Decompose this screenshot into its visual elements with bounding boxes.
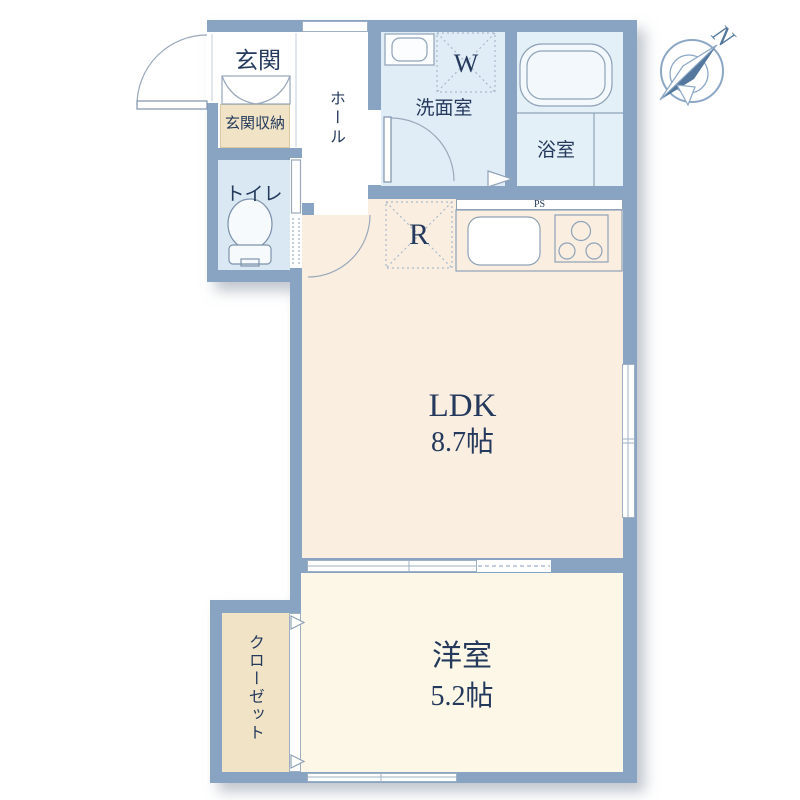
label-bathroom: 浴室	[517, 140, 595, 161]
label-ldk: LDK	[302, 388, 623, 425]
label-western-room: 洋室	[301, 640, 623, 674]
toilet-door-leaf	[292, 160, 301, 213]
entrance-door-icon	[137, 35, 207, 109]
bath-door-triangle-icon	[488, 171, 512, 187]
label-washer-space: W	[437, 49, 495, 78]
washroom-door-icon	[384, 117, 454, 182]
toilet-door-pocket-dashes	[293, 218, 299, 266]
toilet-icon	[228, 199, 272, 266]
washbasin-icon	[385, 34, 434, 65]
label-toilet: トイレ	[217, 184, 291, 205]
label-refrigerator-space: R	[386, 218, 452, 252]
compass-rose-icon: N	[660, 18, 742, 105]
label-washroom: 洗面室	[383, 98, 505, 119]
kitchen-counter-icon	[456, 210, 622, 271]
label-ldk-size: 8.7帖	[302, 427, 623, 458]
label-hall: ホール	[326, 90, 344, 147]
floor-plan: N 玄関 玄関収納 トイレ ホール 洗面室 W 浴室 R PS LDK 8.7帖…	[0, 0, 800, 800]
label-genkan: 玄関	[218, 48, 298, 74]
bathtub-icon	[517, 44, 623, 186]
label-western-room-size: 5.2帖	[301, 681, 623, 712]
label-closet: クローゼット	[245, 634, 263, 742]
label-pipe-space: PS	[456, 199, 623, 210]
ldk-door-arc-icon	[308, 215, 370, 277]
shoe-cabinet-icon	[222, 76, 290, 104]
label-genkan-storage: 玄関収納	[219, 116, 291, 133]
